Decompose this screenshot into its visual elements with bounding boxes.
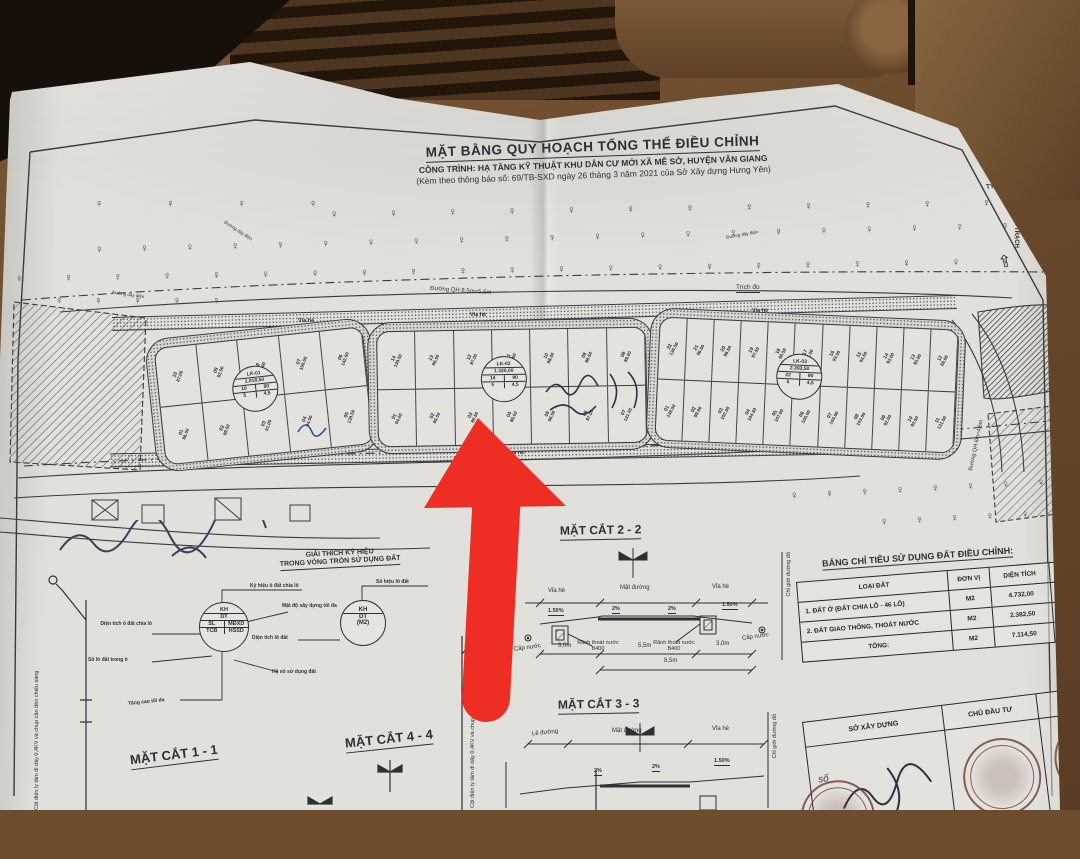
s33-slope-right: 1.50% xyxy=(714,758,730,766)
lot-label: 08103.00 xyxy=(851,410,867,427)
lot-label: 1288.00 xyxy=(936,353,950,368)
cell-unit: M2 xyxy=(948,588,991,610)
legend-label: Số lô đất trong ô xyxy=(88,658,128,664)
lot-cell: 07104.00 xyxy=(818,386,848,448)
cell-area: 7.114,50 xyxy=(993,623,1054,647)
pole-label-right: Cột điện ly tâm đi dây 0,4KV và chụp cần… xyxy=(470,628,476,808)
lot-label: 06105.00 xyxy=(797,407,813,424)
s22-dim-left: 3,0m xyxy=(558,643,571,650)
s33-redline-right: Chỉ giới đường đỏ xyxy=(772,714,778,759)
lot-cell: 03102.00 xyxy=(710,381,740,443)
legend-dt: DT xyxy=(200,614,248,621)
block-mdxd: 90 xyxy=(504,375,526,381)
pole-label-left: Cột điện ly tâm đi dây 0,4KV và chụp cần… xyxy=(34,620,40,810)
lot-cell: 1594.50 xyxy=(848,326,878,388)
s22-slope-right: 1.50% xyxy=(722,602,738,610)
legend2-m2: (M2) xyxy=(341,620,385,626)
s22-slope-c2: 2% xyxy=(668,606,676,614)
lot-cell: 22136.50 xyxy=(658,318,688,380)
lot-label: 0299.00 xyxy=(690,404,704,419)
tree-cluster-icon: ♀ ♀ ♀ ♀ xyxy=(95,198,347,210)
lot-label: 06142.00 xyxy=(336,350,350,367)
cell-unit: M2 xyxy=(951,628,994,650)
lot-label: 1693.50 xyxy=(828,348,842,363)
lot-label: 1393.00 xyxy=(909,352,923,367)
lot-label: 07100.50 xyxy=(295,354,309,371)
tree-cluster-icon: ♀ ♀ ♀ ♀ ♀ xyxy=(55,295,234,307)
legend-label: Mật độ xây dựng tối đa xyxy=(282,604,342,610)
lot-area: 96.50 xyxy=(697,345,707,357)
lot-label: 1087.00 xyxy=(171,368,184,382)
s22-gutter-right: Rãnh thoát nước B400 xyxy=(652,640,696,653)
block-tcb: 5 xyxy=(482,382,505,388)
lot-cell: 05138.50 xyxy=(326,386,373,448)
block-lk03: 22136.502196.502096.501997.501898.501796… xyxy=(645,307,967,461)
lot-cell: 0299.00 xyxy=(683,380,713,442)
lot-cell: 0992.50 xyxy=(872,388,902,450)
lot-cell: 06142.00 xyxy=(320,327,367,389)
round-stamp-icon xyxy=(958,734,1045,821)
so-xay-dung-stamp-area: số xyxy=(806,730,955,842)
s22-dim-center: 5,5m xyxy=(638,643,651,650)
lot-cell: 0285.00 xyxy=(416,388,455,445)
paper-sheet: MẶT BẰNG QUY HOẠCH TỔNG THỂ ĐIỀU CHỈNH C… xyxy=(0,0,1080,810)
lot-label: 1093.50 xyxy=(906,413,920,428)
lot-area: 87.00 xyxy=(470,354,479,366)
block-lk01: 1087.000992.500898.0007100.5006142.00 01… xyxy=(144,317,383,474)
legend-label: Ký hiệu ô đất chia lô xyxy=(250,584,299,590)
lot-cell: 1087.00 xyxy=(155,345,202,407)
pen-mark-blue xyxy=(292,412,332,442)
pen-scribble-lots xyxy=(540,362,660,427)
block-sl: 14 xyxy=(482,375,505,381)
lot-area: 96.50 xyxy=(724,346,734,358)
lot-cell: 1093.50 xyxy=(899,390,929,452)
lot-label: 0486.00 xyxy=(505,408,519,423)
lot-label: 04104.50 xyxy=(743,405,759,422)
lot-area: 100.50 xyxy=(300,356,309,371)
block-tcb: 5 xyxy=(777,379,800,386)
lot-label: 1287.00 xyxy=(466,352,480,367)
chu-dau-tu-stamp-area xyxy=(944,718,1051,825)
lot-label: 2096.50 xyxy=(719,343,733,358)
block-hssd: 4,5 xyxy=(256,389,278,397)
lot-label: 03102.00 xyxy=(716,404,732,421)
lot-cell: 1393.00 xyxy=(902,328,932,390)
lot-cell: 0194.00 xyxy=(378,389,417,446)
lot-cell: 11131.50 xyxy=(926,391,956,453)
trich-do-label: Trích đo xyxy=(736,284,760,293)
lot-cell: 1493.00 xyxy=(875,327,905,389)
s33-center-label: Mặt đường xyxy=(612,728,642,735)
lot-label: 1493.00 xyxy=(882,350,896,365)
s33-slope-c2: 2% xyxy=(652,764,660,772)
lot-cell: 04104.50 xyxy=(737,383,767,445)
street-light-poles xyxy=(49,576,596,810)
lot-cell: 2096.50 xyxy=(712,320,742,382)
lot-label: 05138.50 xyxy=(342,408,356,425)
lot-label: 1594.50 xyxy=(855,349,869,364)
photo-of-planning-map: { "header": { "title": "MẶT BẰNG QUY HOẠ… xyxy=(0,0,1080,810)
cell-unit: M2 xyxy=(950,608,993,630)
lot-area: 92.50 xyxy=(217,366,225,378)
legend-mdxd: MĐXD xyxy=(225,621,249,627)
lot-area: 91.00 xyxy=(265,420,273,432)
lot-area: 85.50 xyxy=(471,411,480,423)
s22-left-label: Vỉa hè xyxy=(548,588,565,595)
section-3-3-title: MẶT CẮT 3 - 3 xyxy=(558,697,640,714)
legend-circle-block: KH DT SLMĐXD TCBHSSD xyxy=(199,602,249,652)
lot-cell: 1997.50 xyxy=(739,321,769,383)
s22-redline-left: Chỉ giới đường đỏ xyxy=(500,652,506,697)
s22-gutter-left: Rãnh thoát nước B400 xyxy=(576,640,620,653)
lot-cell: 1386.50 xyxy=(415,331,454,388)
lot-label: 01138.50 xyxy=(662,401,678,418)
legend-tcb: TCB xyxy=(200,628,225,634)
block-mdxd: 90 xyxy=(800,373,822,380)
lot-label: 0194.00 xyxy=(390,410,404,425)
lot-label: 0992.50 xyxy=(879,412,893,427)
lot-label: 0186.00 xyxy=(177,427,190,441)
lot-label: 1997.50 xyxy=(747,344,761,359)
s33-slope-c1: 2% xyxy=(594,768,602,776)
lot-label: 0288.50 xyxy=(219,422,232,436)
s22-right-label: Vỉa hè xyxy=(712,584,729,591)
pen-scribble xyxy=(52,520,312,570)
legend-hssd: HSSD xyxy=(225,628,249,634)
lot-label: 2196.50 xyxy=(692,342,706,357)
legend-label: Diện tích lô đất xyxy=(252,636,288,642)
legend-circle-lot: KH DT (M2) xyxy=(340,600,386,646)
legend-label: Hệ số sử dụng đất xyxy=(272,670,316,676)
col-unit: ĐƠN VỊ xyxy=(947,568,990,590)
lot-cell: 1693.50 xyxy=(821,325,851,387)
lot-cell: 08103.00 xyxy=(845,387,875,449)
s22-slope-c1: 2% xyxy=(612,606,620,614)
lot-label: 22136.50 xyxy=(665,340,681,357)
legend-label: Số hiệu lô đất xyxy=(376,580,409,586)
s22-dim-right: 3,0m xyxy=(716,641,729,648)
s22-dim-total: 8,5m xyxy=(664,658,677,665)
s22-slope-left: 1.50% xyxy=(548,608,564,616)
lot-cell: 14138.50 xyxy=(377,332,416,389)
lot-label: 07104.00 xyxy=(824,408,840,425)
lot-cell: 07100.50 xyxy=(279,332,326,394)
s33-right-label: Vỉa hè xyxy=(712,726,729,733)
s22-redline-right: Chỉ giới đường đỏ xyxy=(786,552,792,597)
lot-label: 0391.00 xyxy=(260,418,273,432)
block-hssd: 4,5 xyxy=(799,380,821,387)
lot-label: 11131.50 xyxy=(933,413,949,430)
lot-label: 0285.00 xyxy=(428,410,442,425)
lot-area: 88.50 xyxy=(224,424,232,436)
lot-label: 1386.50 xyxy=(427,352,441,367)
lot-area: 86.00 xyxy=(182,428,190,440)
lot-label: 0385.50 xyxy=(467,409,481,424)
s22-center-label: Mặt đường xyxy=(620,585,650,592)
legend-sl: SL xyxy=(200,621,225,627)
section-2-2-title: MẶT CẮT 2 - 2 xyxy=(560,523,642,540)
lot-label: 14138.50 xyxy=(389,352,404,369)
block-hssd: 4,5 xyxy=(504,382,526,388)
lot-label: 05107.00 xyxy=(770,406,786,423)
block-sl: 22 xyxy=(777,372,800,379)
sidewalk-label: Vỉa hè xyxy=(470,312,486,318)
legend-label: Diện tích ô đất chia lô xyxy=(92,622,152,628)
lot-label: 0992.50 xyxy=(212,364,225,378)
lot-cell: 2196.50 xyxy=(685,319,715,381)
lot-cell: 1288.00 xyxy=(929,329,959,391)
block-tcb: 5 xyxy=(234,392,257,400)
lot-cell: 0186.00 xyxy=(161,403,208,465)
lot-area: 86.50 xyxy=(432,354,441,366)
